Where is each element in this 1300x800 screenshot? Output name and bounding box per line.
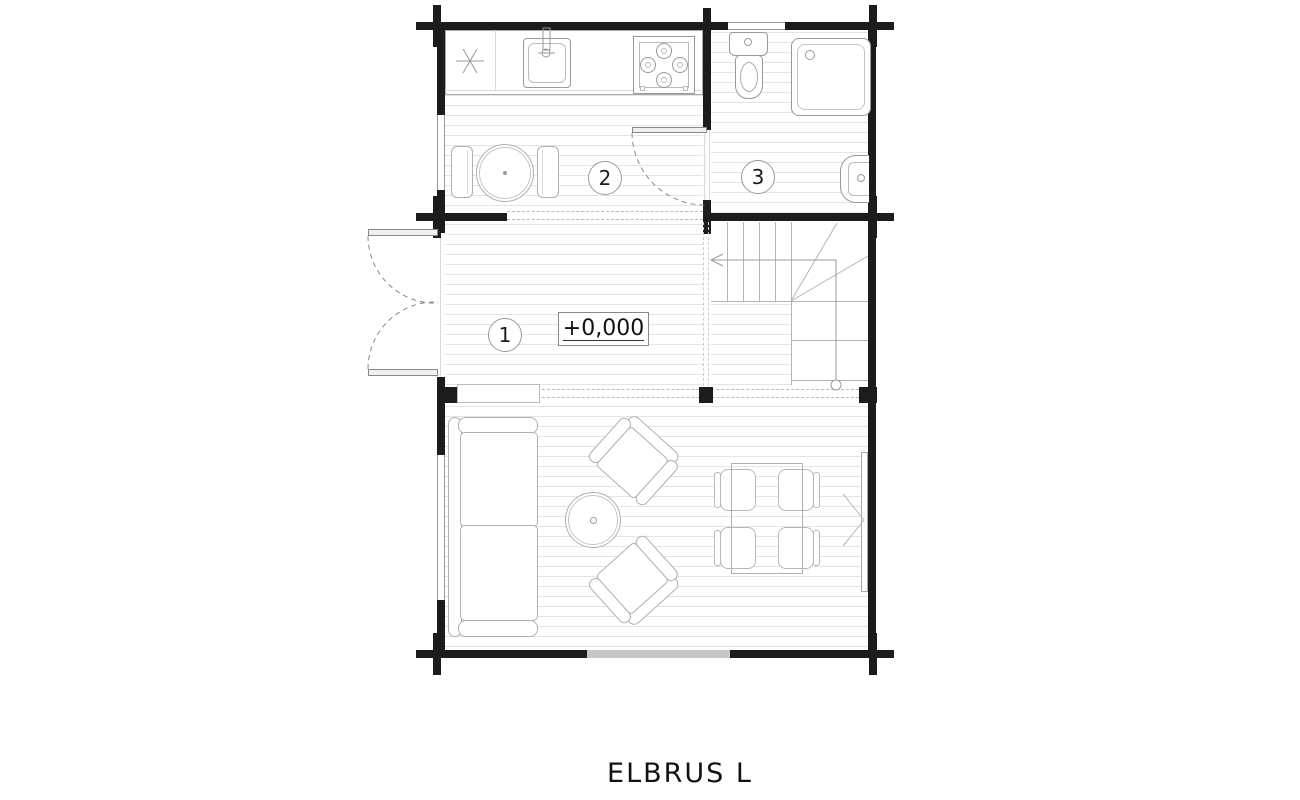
room-label-bathroom: 3 [741,160,775,194]
level-marker-text: +0,000 [563,317,644,341]
entrance-door-swing [368,302,438,369]
room-number: 2 [599,166,612,190]
fridge-asterisk-icon [456,49,484,73]
room-number: 3 [752,165,765,189]
bathroom-door-swing [632,133,707,205]
stair-start-circle [831,380,841,390]
window-opening-chevron-icon [843,494,864,546]
faucet-icon [538,28,555,57]
stair-winder-line [791,223,837,301]
room-label-kitchen: 2 [588,161,622,195]
room-label-hall: 1 [488,318,522,352]
stair-winder-line [791,256,868,301]
floor-plan: 1 2 3 +0,000 ELBRUS L [0,0,1300,800]
plan-linework [0,0,1300,800]
level-marker: +0,000 [558,312,649,346]
plan-title: ELBRUS L [530,758,830,789]
room-number: 1 [499,323,512,347]
entrance-door-swing [368,236,438,303]
stair-walk-line [712,260,836,380]
